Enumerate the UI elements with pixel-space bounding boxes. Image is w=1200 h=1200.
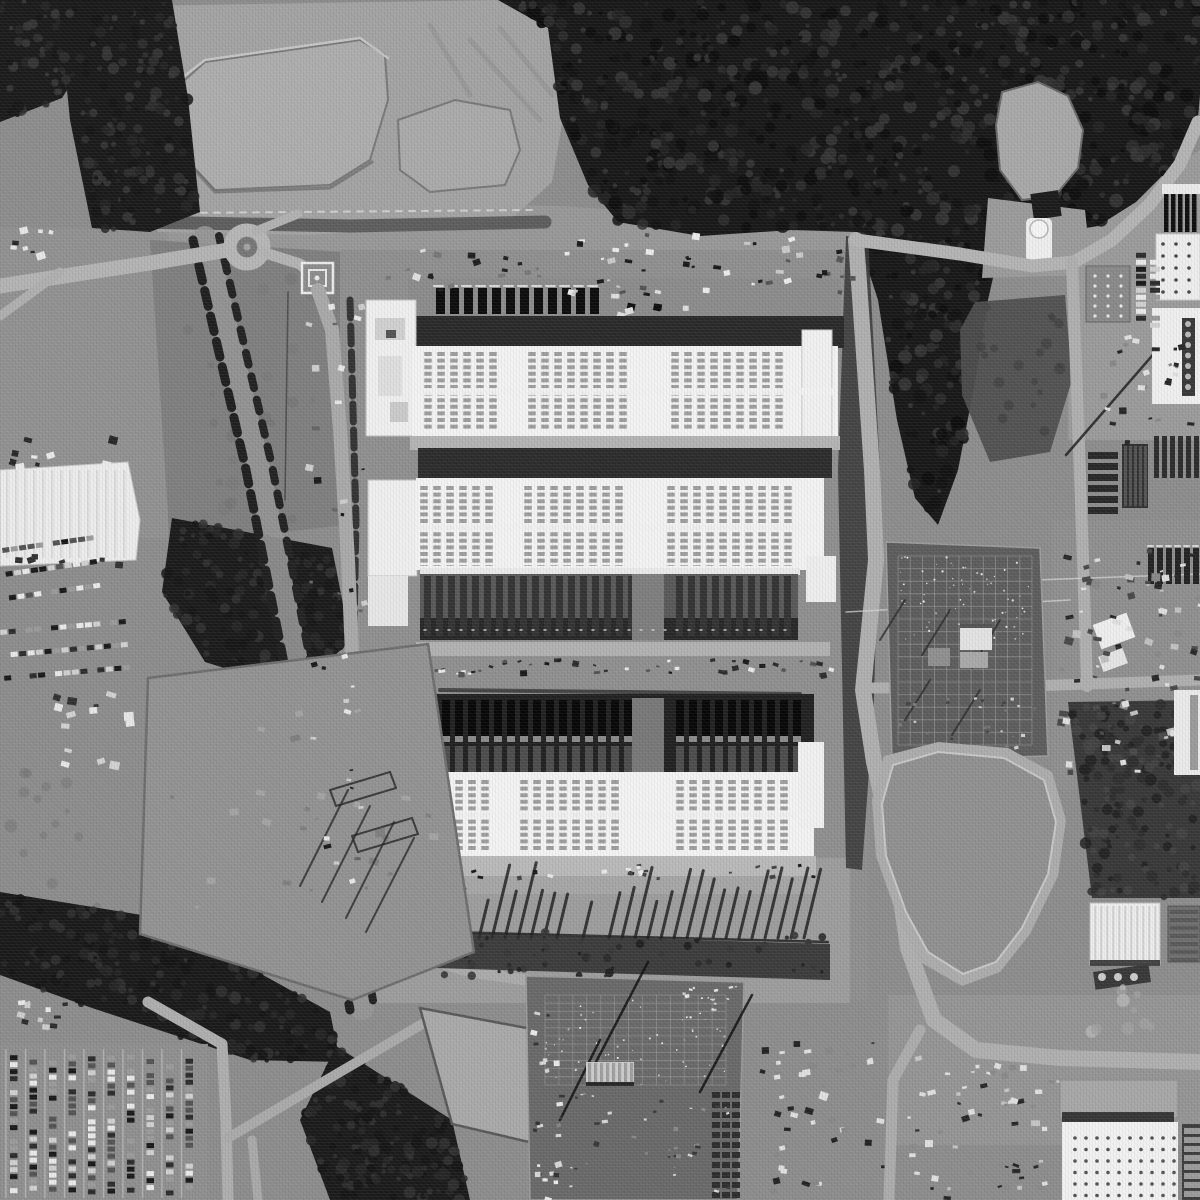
white-roof-east-edge: [1174, 690, 1200, 775]
hall2-roof-walkway: [416, 524, 824, 531]
water-tank-dome: [1030, 220, 1048, 238]
hall3-south-apron: [404, 856, 816, 876]
stall-strip-corner: [1182, 1124, 1200, 1200]
hall3-generator-gap: [632, 698, 664, 774]
hall1-north-shadow-band: [408, 316, 844, 348]
warehouse-with-dashes: [1086, 266, 1130, 322]
colonnade-northeast-cap: [1162, 184, 1200, 194]
construction-pad-west: [140, 644, 474, 1000]
gate-square-dot: [315, 276, 320, 281]
courtyard-building-east: [1152, 308, 1200, 404]
culvert-pipes: [1098, 973, 1138, 981]
hall1-hall2-shadow-band: [418, 448, 832, 478]
sediment-pond-east: [398, 100, 520, 192]
hall2-generator-gap: [632, 574, 664, 640]
aerial-scene: [0, 0, 1200, 1200]
hall1-annex-east: [802, 330, 832, 438]
hall2-south-apron: [416, 642, 830, 656]
slab-bottomright: [1060, 1080, 1178, 1124]
tank-shadow: [1030, 190, 1061, 220]
hall3-generator-bg: [406, 694, 814, 774]
cooling-plant-south-edge: [1090, 960, 1160, 966]
satellite-photo: [0, 0, 1200, 1200]
roundabout: [230, 230, 264, 264]
hall2-annex-east: [806, 556, 836, 602]
road-bottomleft-stub: [252, 1140, 258, 1200]
hall2-parapet-strip: [420, 568, 800, 575]
hall3-roof-walkway: [406, 812, 814, 819]
hall1-roof-walkway: [412, 388, 838, 395]
dam-toe-band: [140, 222, 545, 226]
hall1-south-apron: [410, 436, 840, 450]
